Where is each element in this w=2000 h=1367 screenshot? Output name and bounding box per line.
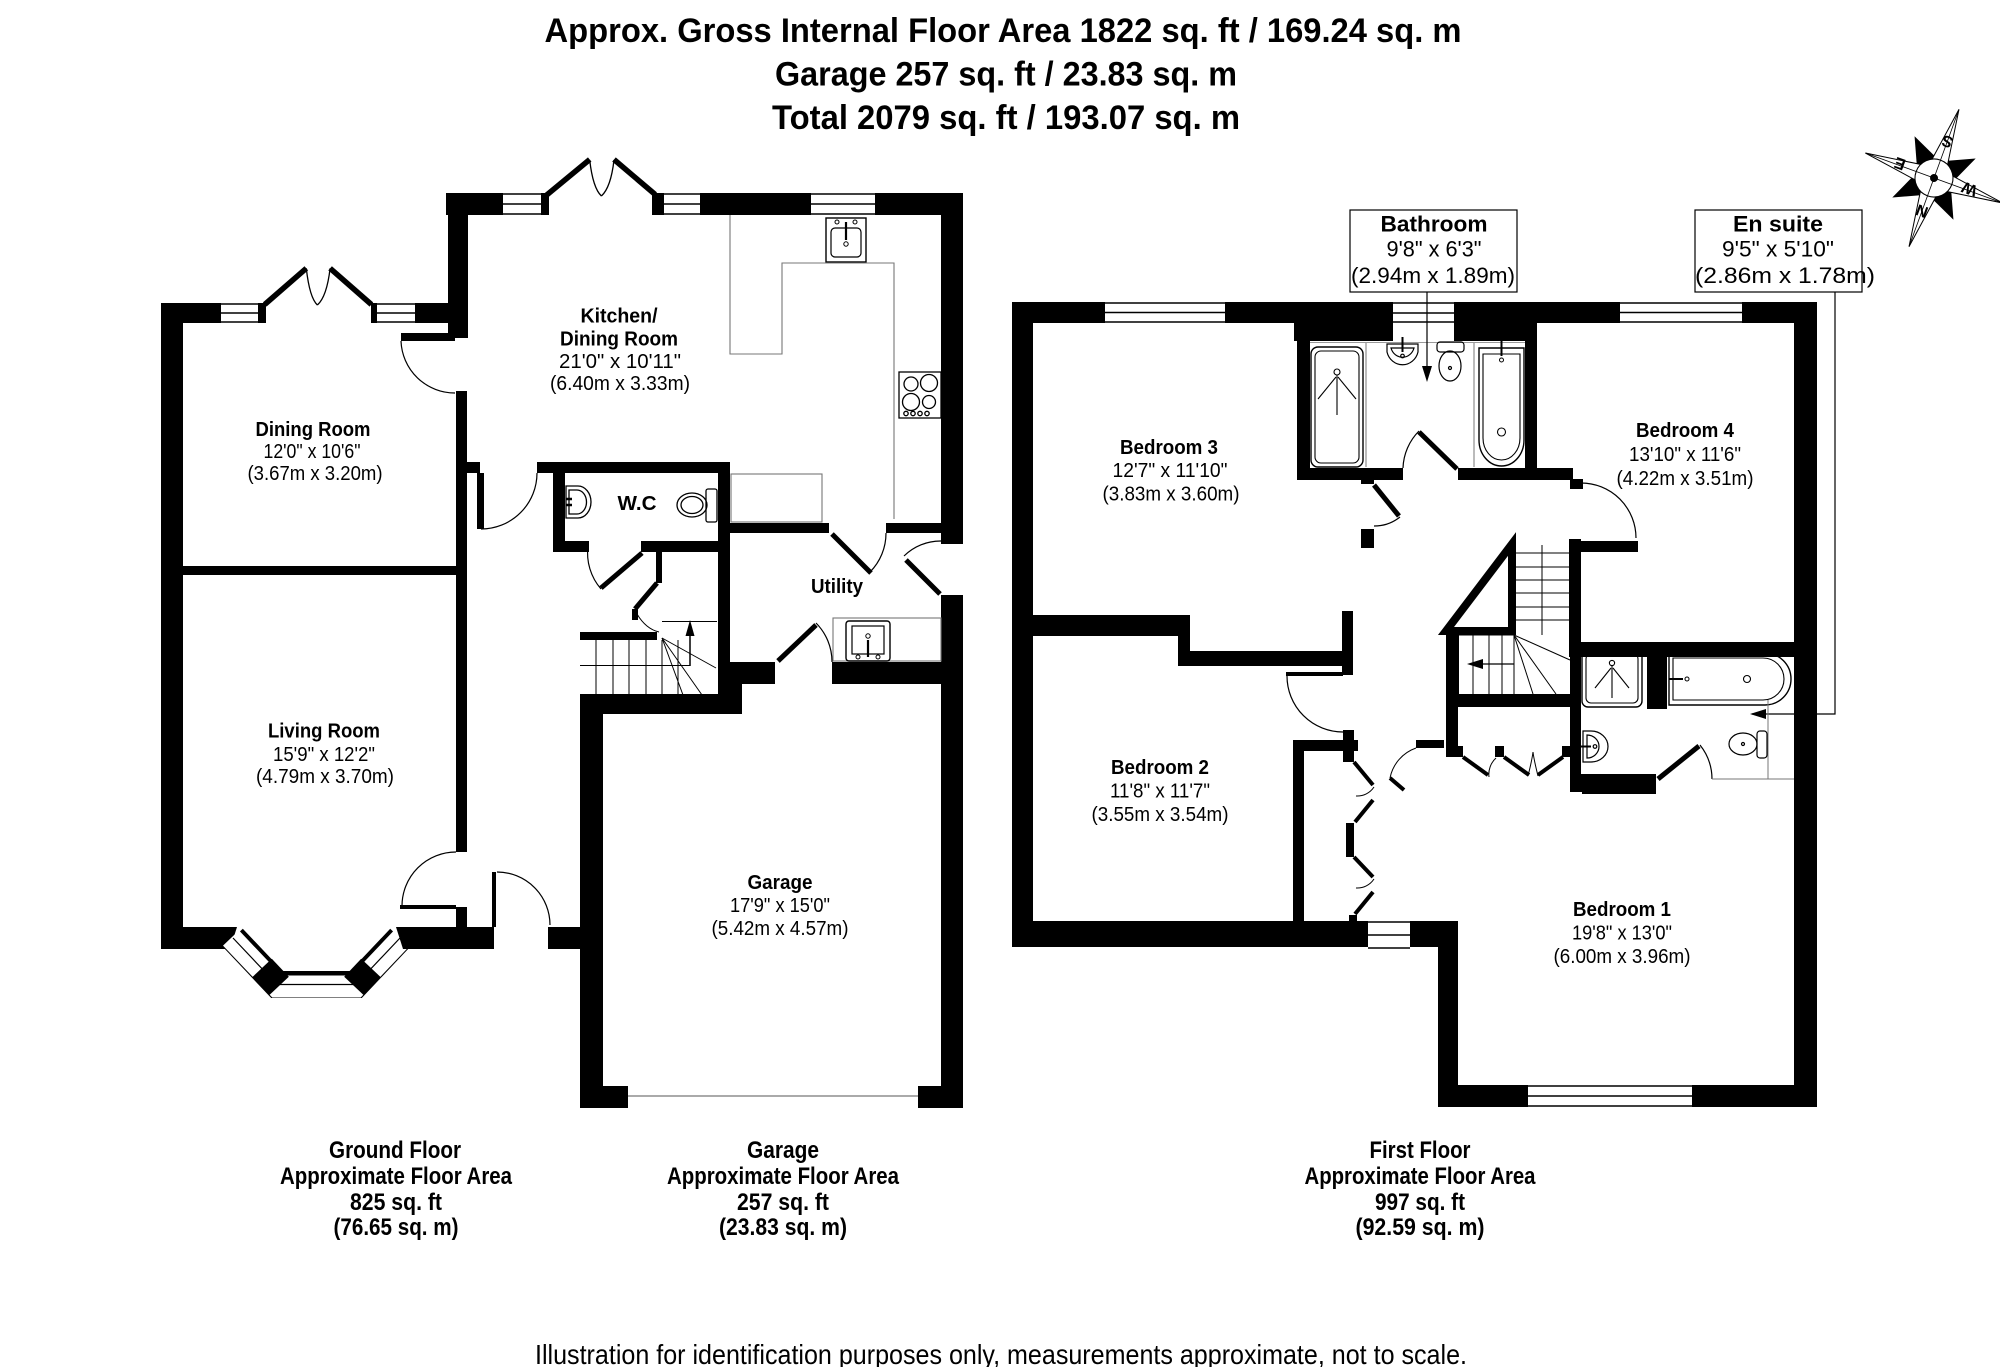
svg-text:12'7" x 11'10": 12'7" x 11'10" — [1113, 460, 1228, 482]
svg-text:(23.83 sq. m): (23.83 sq. m) — [719, 1214, 847, 1241]
svg-text:(3.67m x 3.20m): (3.67m x 3.20m) — [248, 463, 383, 485]
svg-text:(4.22m x 3.51m): (4.22m x 3.51m) — [1617, 468, 1754, 490]
svg-text:Illustration for identificatio: Illustration for identification purposes… — [535, 1339, 1467, 1367]
svg-text:Garage: Garage — [747, 1137, 819, 1164]
svg-text:(3.83m x 3.60m): (3.83m x 3.60m) — [1103, 484, 1240, 506]
svg-text:Ground Floor: Ground Floor — [329, 1137, 461, 1164]
svg-text:(2.86m x 1.78m): (2.86m x 1.78m) — [1695, 263, 1875, 288]
svg-text:Bathroom: Bathroom — [1381, 212, 1488, 237]
svg-text:257 sq. ft: 257 sq. ft — [737, 1189, 829, 1216]
svg-text:(92.59 sq. m): (92.59 sq. m) — [1356, 1214, 1485, 1241]
svg-text:W.C: W.C — [618, 493, 657, 515]
svg-text:Kitchen/: Kitchen/ — [581, 306, 658, 328]
svg-text:Total 2079 sq. ft / 193.07 sq.: Total 2079 sq. ft / 193.07 sq. m — [772, 99, 1240, 137]
svg-text:(6.40m x 3.33m): (6.40m x 3.33m) — [550, 373, 690, 395]
svg-text:(6.00m x 3.96m): (6.00m x 3.96m) — [1554, 946, 1691, 968]
svg-text:17'9" x 15'0": 17'9" x 15'0" — [730, 895, 830, 917]
svg-text:(76.65 sq. m): (76.65 sq. m) — [334, 1214, 459, 1241]
svg-text:Utility: Utility — [811, 576, 864, 598]
svg-text:12'0" x 10'6": 12'0" x 10'6" — [264, 441, 361, 463]
svg-text:Bedroom 2: Bedroom 2 — [1111, 757, 1209, 779]
svg-text:Bedroom 4: Bedroom 4 — [1636, 420, 1735, 442]
svg-text:En suite: En suite — [1733, 212, 1823, 237]
svg-text:Dining Room: Dining Room — [256, 419, 371, 441]
svg-text:First Floor: First Floor — [1370, 1137, 1471, 1164]
svg-text:Garage: Garage — [748, 872, 813, 894]
svg-text:Approximate Floor Area: Approximate Floor Area — [667, 1163, 900, 1190]
svg-text:11'8" x 11'7": 11'8" x 11'7" — [1110, 781, 1210, 803]
svg-text:997 sq. ft: 997 sq. ft — [1375, 1189, 1465, 1216]
svg-text:825 sq. ft: 825 sq. ft — [350, 1189, 442, 1216]
svg-text:(4.79m x 3.70m): (4.79m x 3.70m) — [256, 766, 394, 788]
svg-text:19'8" x 13'0": 19'8" x 13'0" — [1572, 923, 1672, 945]
svg-text:Dining Room: Dining Room — [560, 329, 678, 351]
svg-text:(5.42m x 4.57m): (5.42m x 4.57m) — [712, 918, 849, 940]
svg-text:Garage 257 sq. ft / 23.83 sq.: Garage 257 sq. ft / 23.83 sq. m — [775, 56, 1237, 94]
svg-text:Approximate Floor Area: Approximate Floor Area — [280, 1163, 513, 1190]
svg-text:Living Room: Living Room — [268, 721, 380, 743]
svg-text:13'10" x 11'6": 13'10" x 11'6" — [1629, 444, 1741, 466]
svg-text:Approximate Floor Area: Approximate Floor Area — [1305, 1163, 1537, 1190]
svg-text:Approx. Gross Internal Floor A: Approx. Gross Internal Floor Area 1822 s… — [545, 12, 1462, 50]
svg-text:9'8" x 6'3": 9'8" x 6'3" — [1387, 237, 1482, 262]
svg-text:(2.94m x 1.89m): (2.94m x 1.89m) — [1351, 263, 1515, 288]
svg-text:(3.55m x 3.54m): (3.55m x 3.54m) — [1092, 804, 1229, 826]
svg-text:Bedroom 3: Bedroom 3 — [1120, 437, 1218, 459]
svg-text:15'9" x 12'2": 15'9" x 12'2" — [273, 744, 375, 766]
svg-text:Bedroom 1: Bedroom 1 — [1573, 899, 1671, 921]
svg-text:21'0" x 10'11": 21'0" x 10'11" — [559, 351, 681, 373]
svg-text:9'5" x 5'10": 9'5" x 5'10" — [1722, 237, 1834, 262]
